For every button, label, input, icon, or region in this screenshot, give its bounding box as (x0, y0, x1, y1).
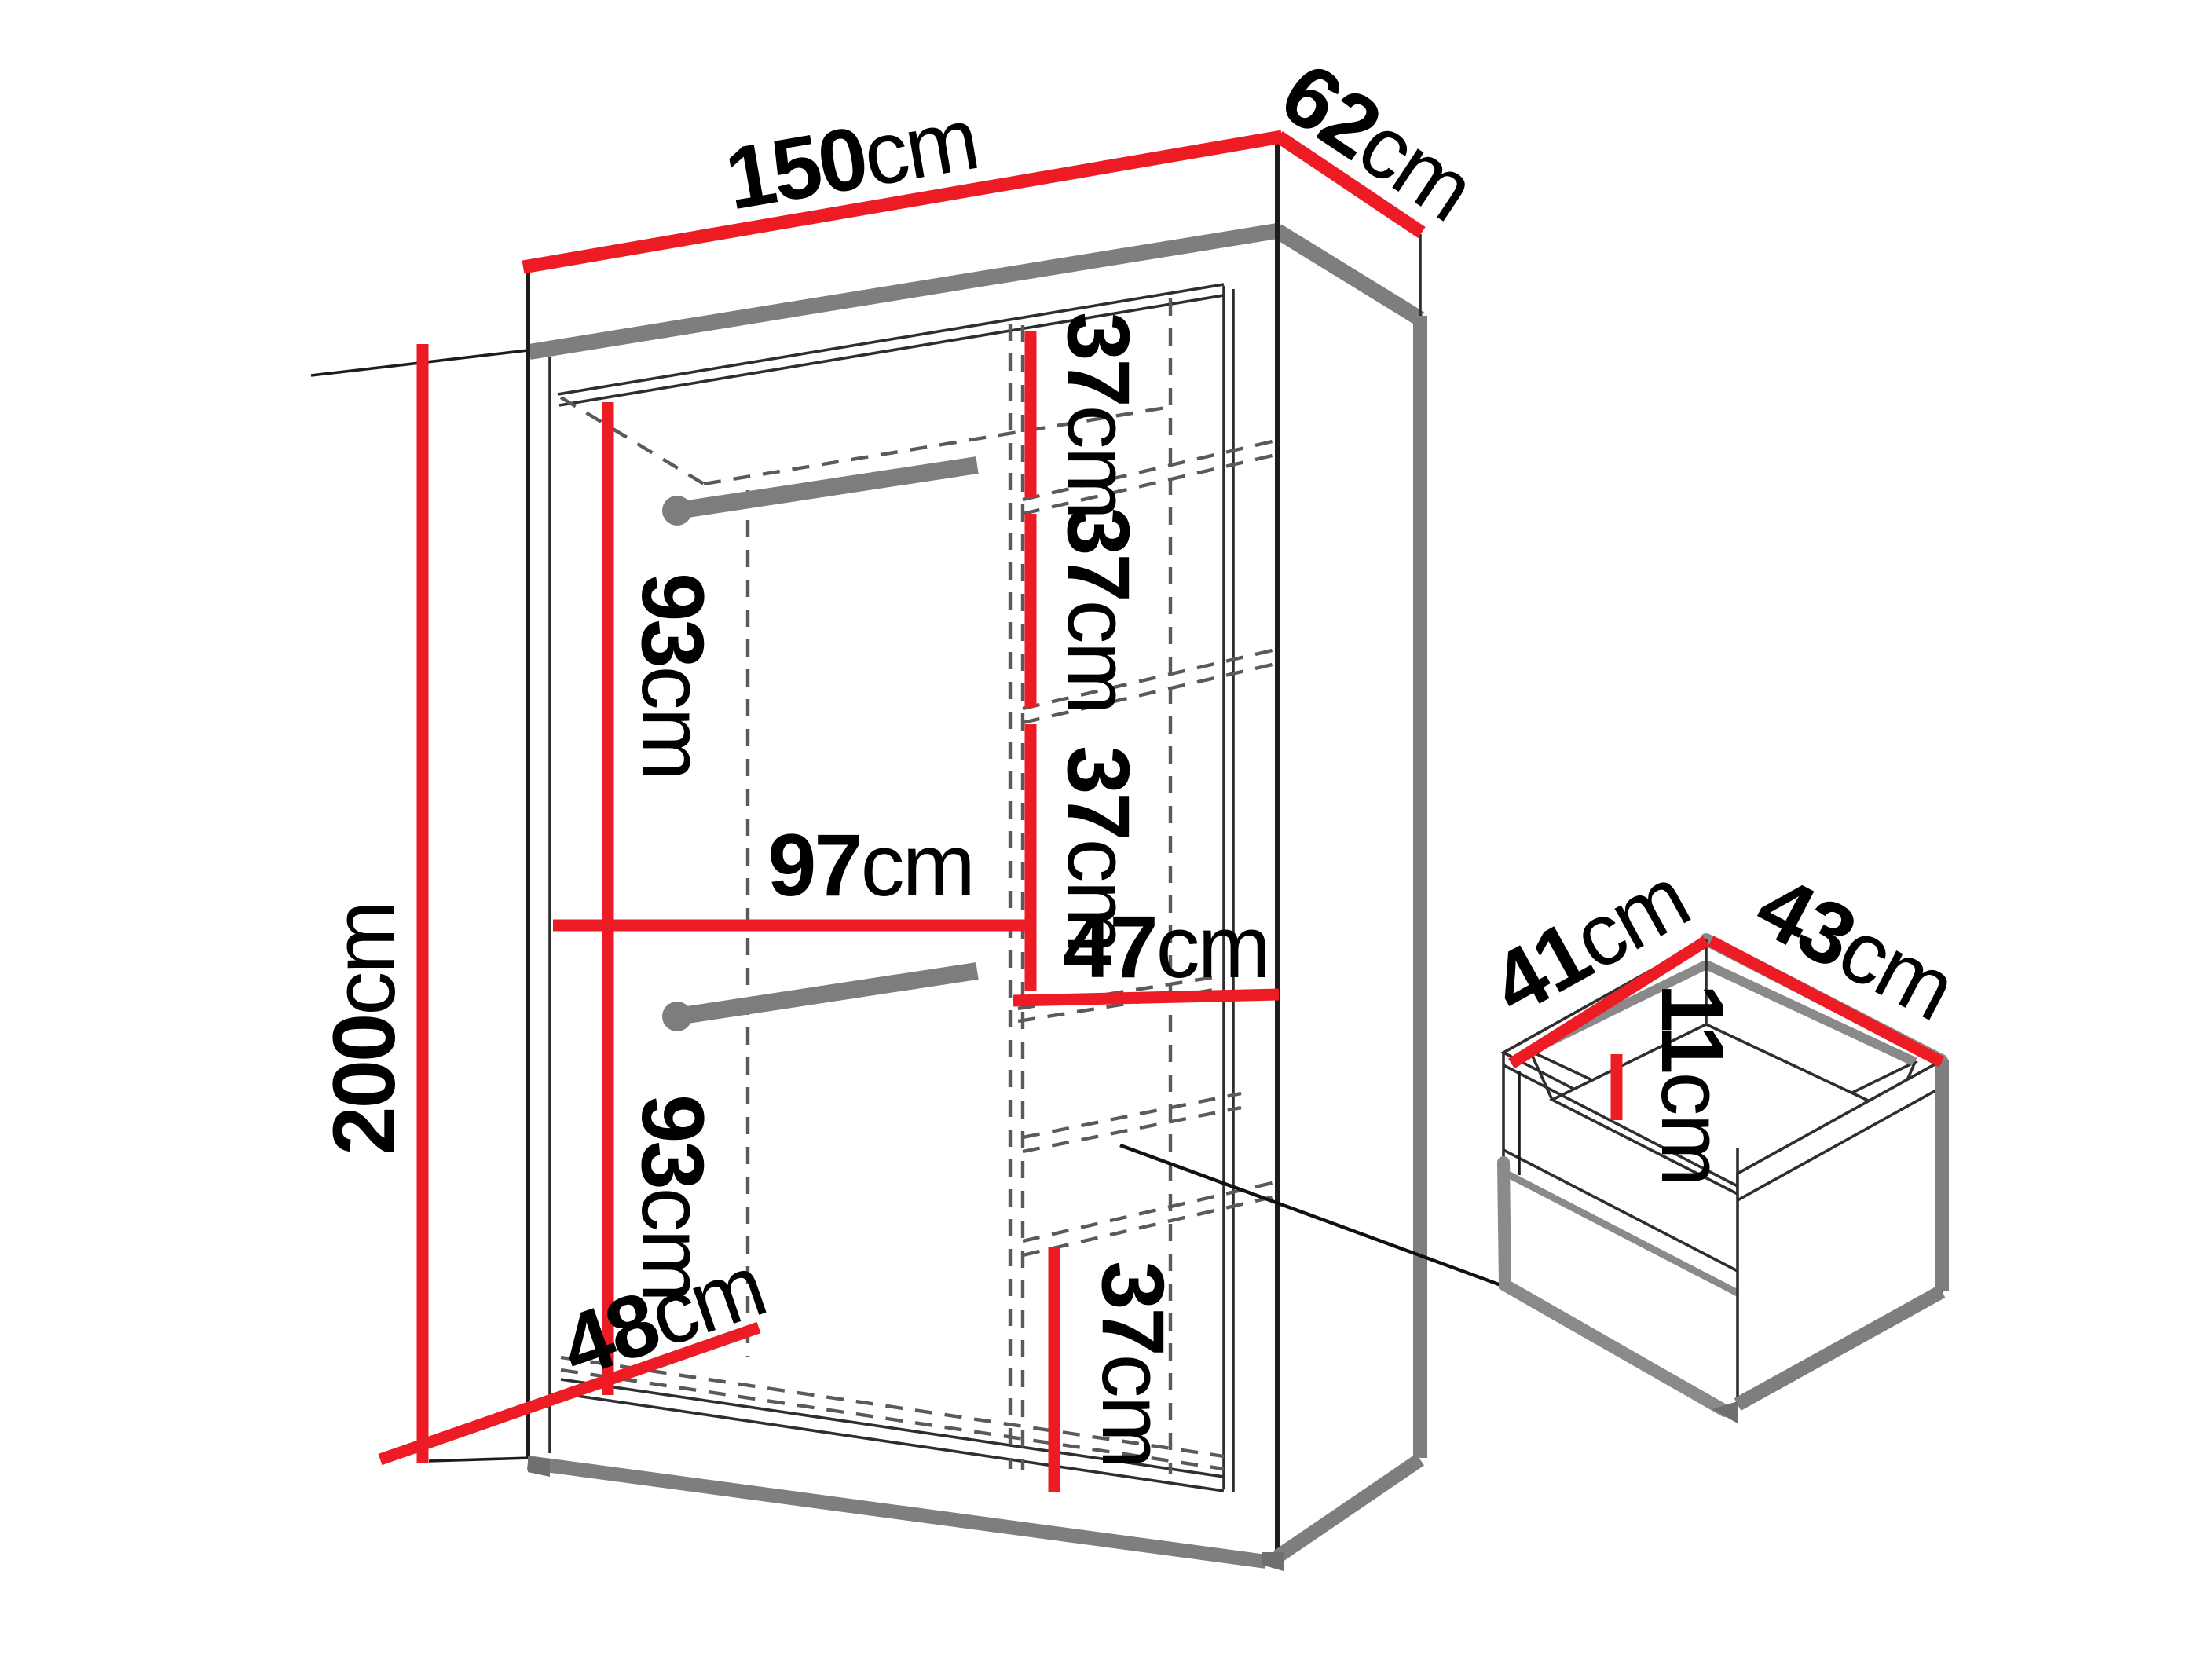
left-panel-bottom-edge (429, 1458, 531, 1461)
label-47cm: 47cm (1063, 898, 1269, 996)
drawer-runner-shadow (1503, 1163, 1725, 1411)
label-height-200cm: 200cm (315, 903, 413, 1155)
label-37cm-1: 37cm (1049, 312, 1148, 518)
label-93cm-top: 93cm (624, 573, 722, 778)
wardrobe-right-panel (1277, 138, 1420, 1558)
label-37cm-bottom: 37cm (1084, 1261, 1182, 1467)
front-left-foot (528, 1456, 550, 1477)
label-drawer-11cm: 11cm (1643, 983, 1741, 1185)
label-97cm: 97cm (767, 816, 973, 914)
wardrobe-dimension-diagram: 150cm 62cm 200cm 93cm 97cm 93cm 48cm 37c… (0, 0, 2212, 1659)
drawer-wall-bottom (1503, 1172, 1738, 1293)
label-37cm-2: 37cm (1049, 507, 1148, 712)
